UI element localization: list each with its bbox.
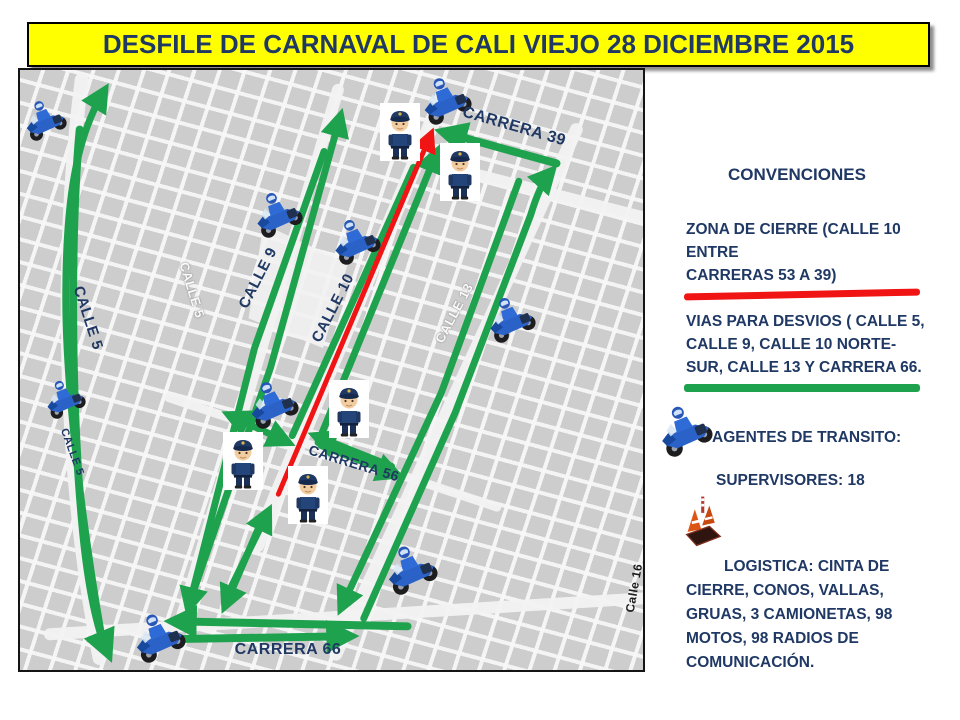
street-label: CALLE 9 [235,245,280,312]
title-banner: DESFILE DE CARNAVAL DE CALI VIEJO 28 DIC… [27,22,930,67]
legend-closure-text: ZONA DE CIERRE (CALLE 10 ENTRE CARRERAS … [686,218,934,287]
moto-cop-glyph [655,399,713,457]
moto-cop-icon [655,399,713,462]
street-label: CALLE 13 [432,281,476,346]
slide: { "title": { "text": "DESFILE DE CARNAVA… [0,0,960,720]
street-label: CARRERA 66 [235,641,342,659]
street-label-layer: CALLE 5CALLE 5CALLE 5CALLE 9CALLE 10CALL… [20,70,643,670]
street-label: CARRERA 56 [307,442,402,485]
legend-agents-label: AGENTES DE TRANSITO: [712,426,942,449]
traffic-cones-glyph [684,494,722,548]
route-map: CALLE 5CALLE 5CALLE 5CALLE 9CALLE 10CALL… [18,68,645,672]
street-label: CALLE 5 [176,260,207,320]
legend-logistics-text: LOGISTICA: CINTA DE CIERRE, CONOS, VALLA… [686,555,930,675]
legend-detour-text: VIAS PARA DESVIOS ( CALLE 5, CALLE 9, CA… [686,310,938,379]
closure-red-line-swatch [684,289,920,301]
street-label: CALLE 5 [58,427,86,477]
traffic-cones-icon [684,494,722,553]
legend-supervisors-label: SUPERVISORES: 18 [716,469,936,492]
detour-green-line-swatch [684,384,920,392]
page-title: DESFILE DE CARNAVAL DE CALI VIEJO 28 DIC… [103,29,854,60]
street-label: CALLE 5 [70,284,107,352]
street-label: CARRERA 39 [460,104,567,151]
street-label: CALLE 10 [308,271,357,345]
legend-heading: CONVENCIONES [688,165,906,185]
street-label: Calle 16 [623,562,645,613]
